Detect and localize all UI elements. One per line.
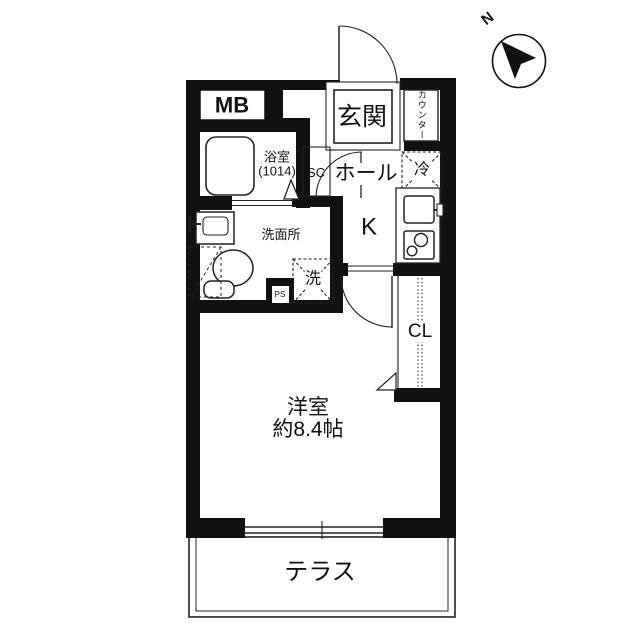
wall-top-left xyxy=(186,80,340,90)
closet-opening-mark xyxy=(377,373,396,390)
main-room-door xyxy=(341,266,393,328)
label-washroom: 洗面所 xyxy=(261,228,300,242)
entrance-area xyxy=(326,26,400,150)
label-meter-box: MB xyxy=(215,93,249,116)
wall-bottom-right xyxy=(383,518,456,538)
label-bathroom: 浴室 (1014) xyxy=(258,150,296,177)
label-counter: カウンター xyxy=(416,90,425,140)
label-main-room-area: 約8.4帖 xyxy=(272,419,343,441)
floor-plan: MB 玄関 カウンター 浴室 (1014) SC ホール 冷 K 洗面所 洗 P… xyxy=(0,0,640,639)
compass xyxy=(493,35,546,88)
toilet-base xyxy=(204,281,234,298)
wall-bathroom-bottom xyxy=(186,196,232,210)
label-bathroom-size: (1014) xyxy=(258,164,296,178)
label-bathroom-name: 浴室 xyxy=(258,150,296,164)
entrance-door-arc xyxy=(339,26,397,84)
label-main-room-name: 洋室 xyxy=(272,397,343,419)
label-main-room: 洋室 約8.4帖 xyxy=(272,397,343,441)
kitchen-counter xyxy=(396,188,444,263)
wall-kitchen-bottom-right xyxy=(393,263,456,276)
wall-mb-right xyxy=(265,88,283,120)
label-terrace: テラス xyxy=(284,559,356,584)
floor-plan-drawing xyxy=(0,0,640,639)
wall-counter-bottom xyxy=(404,141,444,151)
wall-washroom-kitchen xyxy=(330,196,343,313)
label-hall: ホール xyxy=(333,163,400,185)
wall-kitchen-bottom-left xyxy=(330,263,348,276)
label-pipe-space: PS xyxy=(275,291,286,299)
kitchen-sink xyxy=(404,196,434,223)
wall-closet-bottom xyxy=(394,388,456,402)
wall-bottom-left xyxy=(186,518,245,538)
label-refrigerator: 冷 xyxy=(412,163,432,180)
label-kitchen: K xyxy=(361,214,377,239)
wall-washroom-bottom xyxy=(186,300,343,313)
bathtub xyxy=(206,137,254,195)
label-shoe-closet: SC xyxy=(307,166,325,180)
label-washer: 洗 xyxy=(303,272,323,289)
label-closet: CL xyxy=(406,322,434,342)
label-entrance: 玄関 xyxy=(337,104,387,130)
